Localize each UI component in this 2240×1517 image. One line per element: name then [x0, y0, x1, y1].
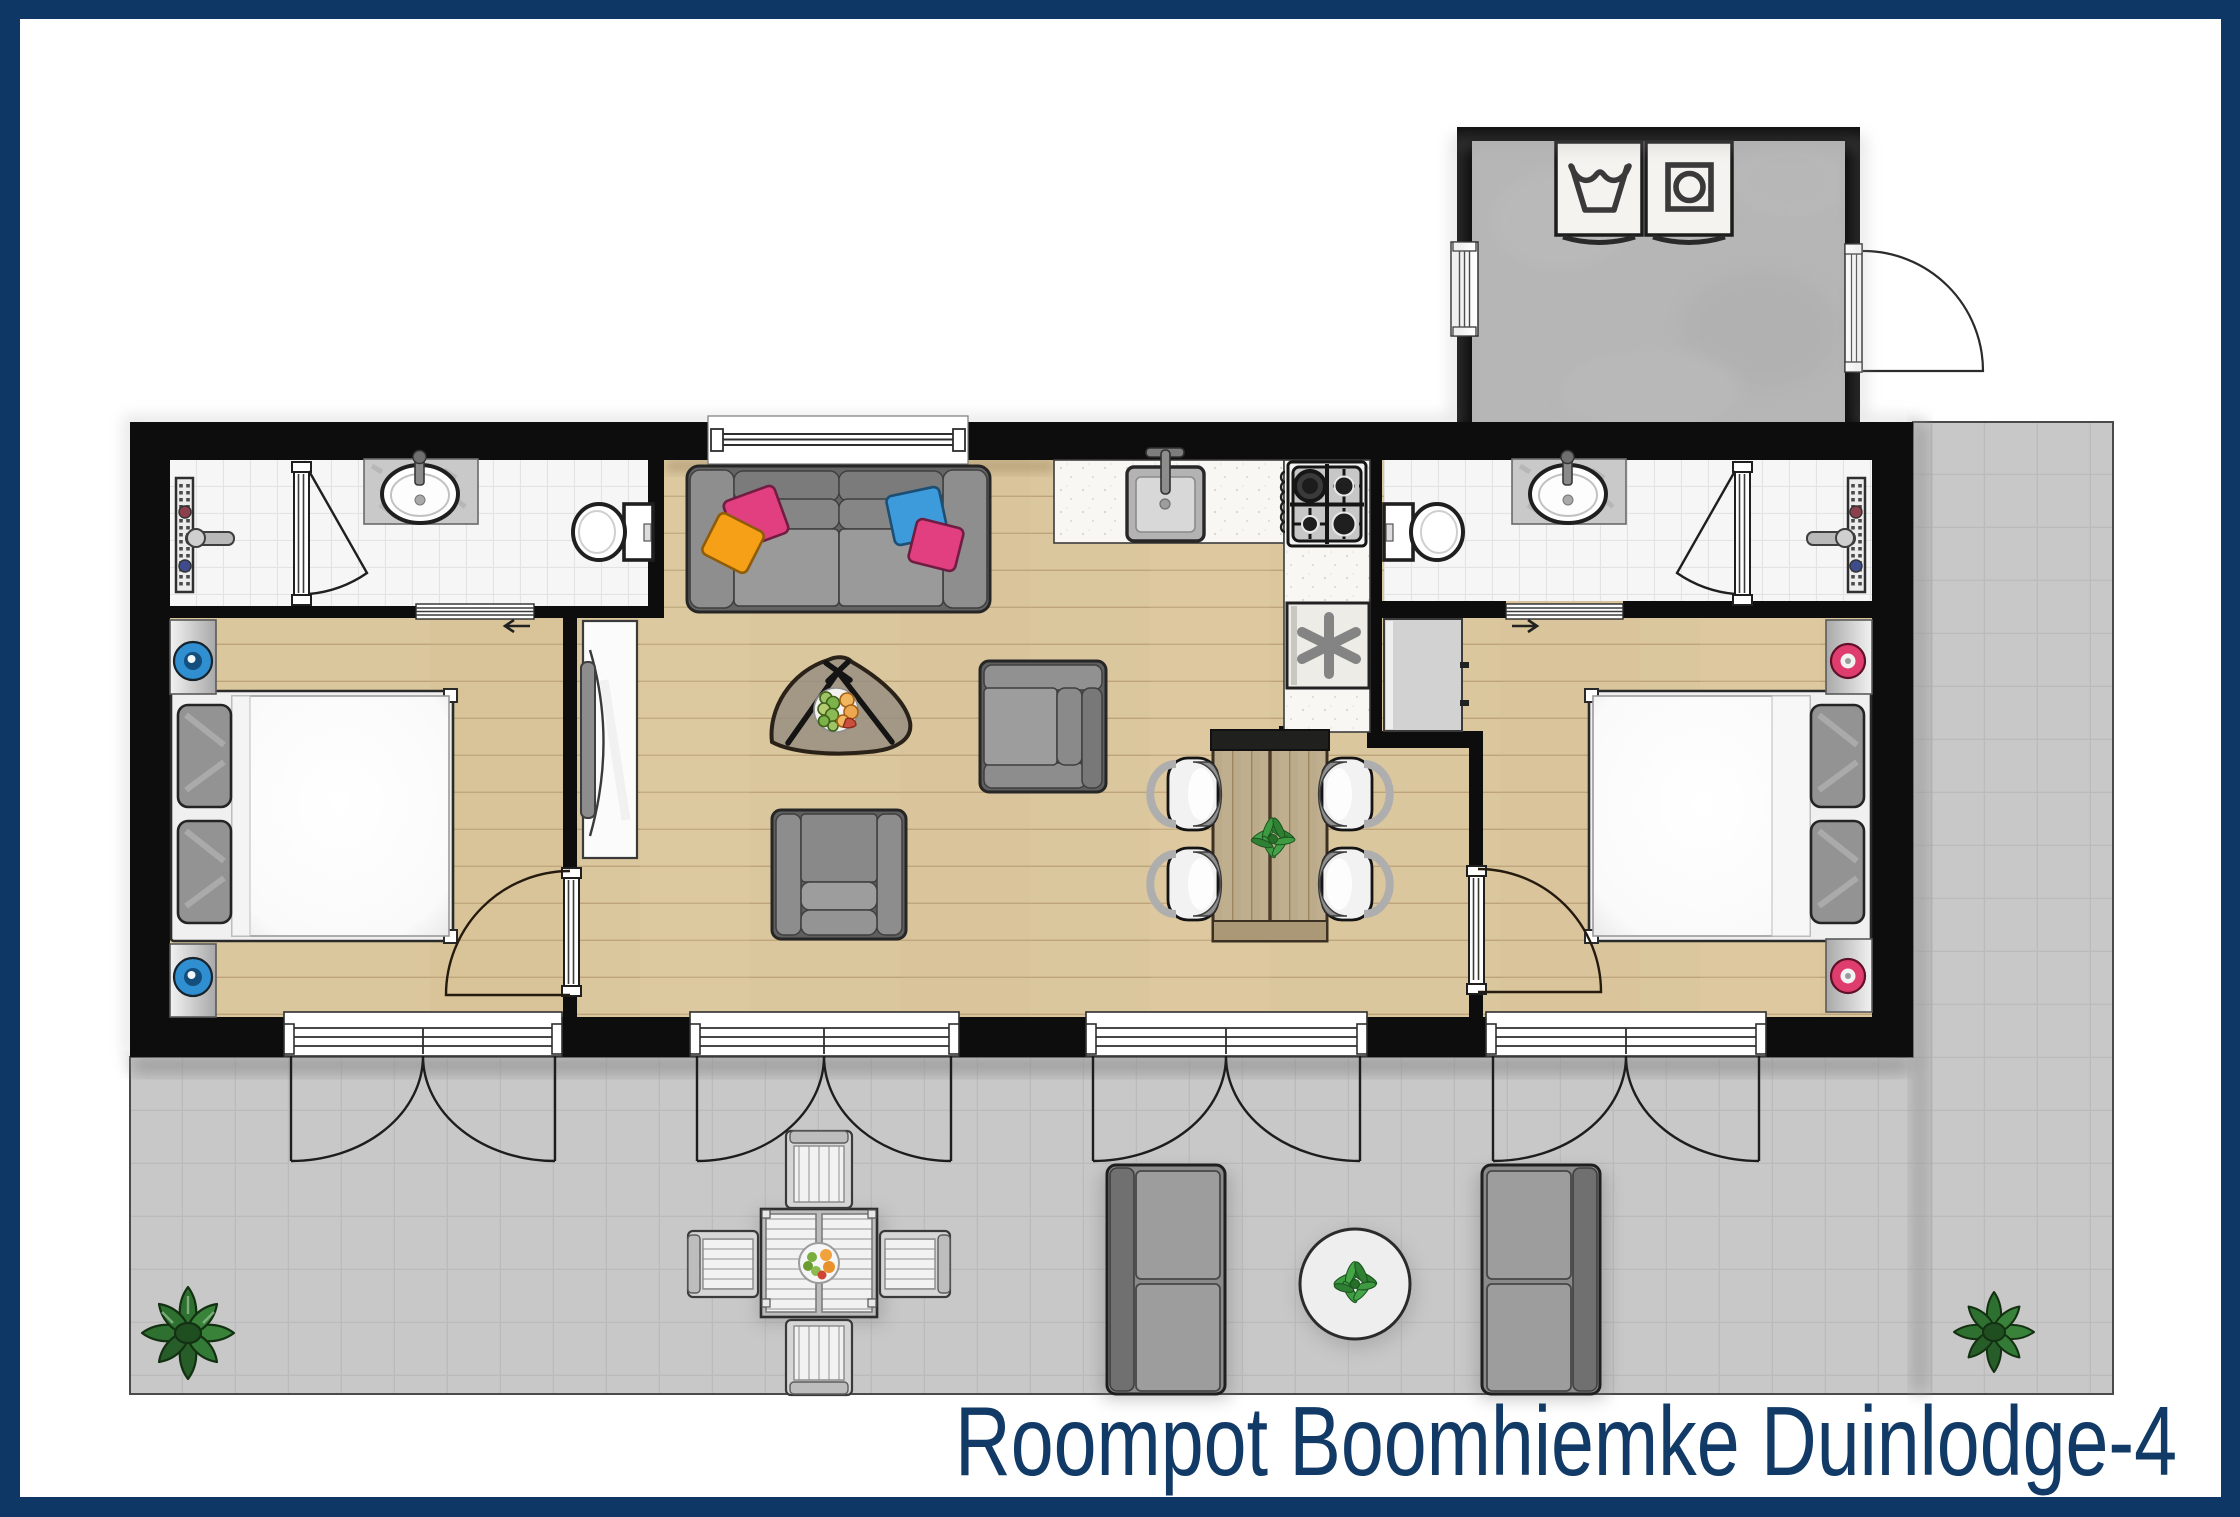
svg-text:Roompot Boomhiemke Duinlodge-4: Roompot Boomhiemke Duinlodge-4	[955, 1386, 2177, 1496]
